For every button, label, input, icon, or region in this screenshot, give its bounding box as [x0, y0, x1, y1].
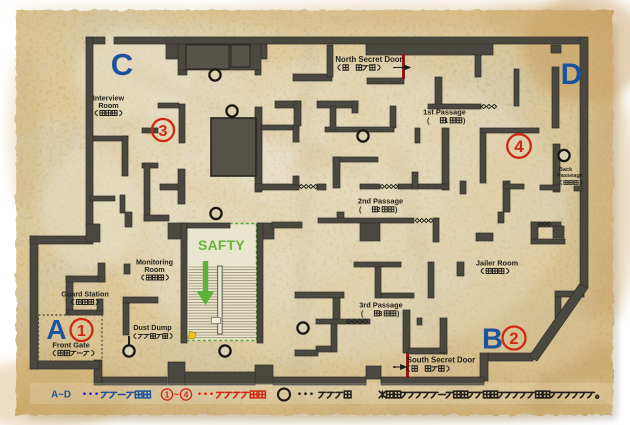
svg-text:North Secret Door: North Secret Door: [335, 55, 402, 64]
svg-text:D: D: [561, 58, 583, 91]
svg-text:Dust Dump: Dust Dump: [133, 323, 172, 332]
svg-text:1: 1: [445, 118, 449, 125]
svg-text:Room: Room: [144, 265, 164, 274]
svg-text:2: 2: [509, 330, 518, 348]
svg-text:4: 4: [184, 390, 189, 400]
svg-text:~: ~: [174, 390, 179, 400]
svg-text:SAFTY: SAFTY: [198, 238, 245, 253]
svg-text:C: C: [111, 47, 133, 82]
svg-text:3: 3: [159, 123, 168, 140]
svg-text:Guard Station: Guard Station: [61, 290, 109, 299]
svg-text:): ): [463, 118, 465, 125]
svg-text:3: 3: [379, 311, 383, 318]
svg-text:B: B: [482, 324, 503, 356]
svg-text:A: A: [46, 314, 66, 345]
svg-text:4: 4: [514, 137, 524, 156]
svg-text:Jailer Room: Jailer Room: [476, 259, 519, 268]
svg-text:A~D: A~D: [51, 390, 71, 401]
svg-text:Room: Room: [98, 101, 118, 110]
svg-text:): ): [395, 207, 397, 214]
svg-text:2nd Passage: 2nd Passage: [358, 197, 403, 206]
svg-text:South Secret Door: South Secret Door: [407, 356, 475, 365]
svg-text:1: 1: [165, 390, 170, 400]
svg-text:Passeage: Passeage: [557, 173, 583, 179]
svg-text:3rd Passage: 3rd Passage: [359, 301, 403, 310]
svg-text:): ): [397, 311, 399, 318]
svg-text:1st Passage: 1st Passage: [423, 108, 466, 117]
svg-text:1: 1: [77, 323, 86, 340]
svg-text:2: 2: [377, 207, 381, 214]
